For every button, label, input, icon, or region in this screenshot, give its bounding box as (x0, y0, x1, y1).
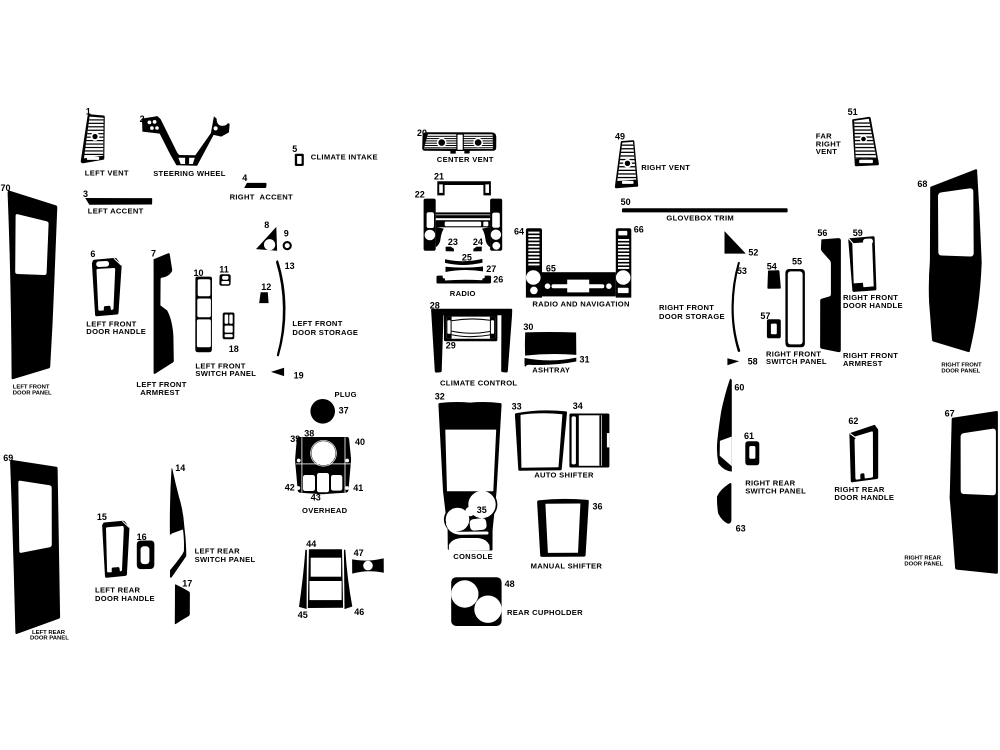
svg-text:SWITCH PANEL: SWITCH PANEL (195, 555, 256, 564)
svg-text:CENTER VENT: CENTER VENT (437, 155, 494, 164)
svg-text:42: 42 (285, 483, 295, 493)
svg-text:58: 58 (748, 356, 758, 366)
svg-text:3: 3 (83, 189, 88, 199)
svg-text:ARMREST: ARMREST (843, 359, 883, 368)
svg-text:61: 61 (744, 431, 754, 441)
svg-text:34: 34 (573, 401, 583, 411)
svg-text:50: 50 (621, 197, 631, 207)
svg-text:4: 4 (242, 173, 247, 183)
svg-text:25: 25 (462, 252, 472, 262)
svg-text:CLIMATE INTAKE: CLIMATE INTAKE (311, 153, 378, 162)
svg-text:46: 46 (354, 607, 364, 617)
svg-text:32: 32 (435, 392, 445, 402)
svg-text:36: 36 (593, 502, 603, 512)
svg-text:48: 48 (505, 579, 515, 589)
svg-text:60: 60 (734, 382, 744, 392)
svg-text:LEFT VENT: LEFT VENT (85, 169, 129, 178)
svg-text:SWITCH PANEL: SWITCH PANEL (745, 487, 806, 496)
svg-text:DOOR HANDLE: DOOR HANDLE (86, 327, 146, 336)
svg-text:15: 15 (97, 512, 107, 522)
svg-text:DOOR HANDLE: DOOR HANDLE (95, 594, 155, 603)
svg-text:52: 52 (748, 247, 758, 257)
svg-text:RADIO: RADIO (450, 289, 476, 298)
svg-text:44: 44 (306, 539, 316, 549)
svg-text:45: 45 (298, 610, 308, 620)
svg-text:PLUG: PLUG (335, 390, 357, 399)
svg-text:27: 27 (486, 264, 496, 274)
svg-text:RIGHT FRONT: RIGHT FRONT (659, 303, 714, 312)
svg-text:51: 51 (848, 107, 858, 117)
svg-text:VENT: VENT (816, 147, 838, 156)
svg-text:43: 43 (311, 492, 321, 502)
svg-text:AUTO SHIFTER: AUTO SHIFTER (534, 471, 594, 480)
svg-text:RIGHT VENT: RIGHT VENT (641, 163, 690, 172)
svg-text:DOOR PANEL: DOOR PANEL (941, 368, 980, 374)
svg-text:55: 55 (792, 257, 802, 267)
svg-text:DOOR PANEL: DOOR PANEL (13, 390, 52, 396)
svg-text:53: 53 (737, 266, 747, 276)
svg-text:1: 1 (86, 106, 91, 116)
svg-text:GLOVEBOX TRIM: GLOVEBOX TRIM (666, 214, 734, 223)
svg-text:2: 2 (140, 114, 145, 124)
svg-text:DOOR HANDLE: DOOR HANDLE (834, 493, 894, 502)
svg-text:REAR CUPHOLDER: REAR CUPHOLDER (507, 608, 583, 617)
svg-text:37: 37 (339, 406, 349, 416)
svg-text:6: 6 (90, 249, 95, 259)
svg-text:7: 7 (151, 249, 156, 259)
svg-text:38: 38 (304, 428, 314, 438)
svg-text:41: 41 (353, 483, 363, 493)
svg-text:35: 35 (477, 505, 487, 515)
svg-text:70: 70 (1, 183, 11, 193)
svg-text:62: 62 (848, 416, 858, 426)
svg-text:67: 67 (945, 409, 955, 419)
svg-text:23: 23 (448, 237, 458, 247)
svg-text:33: 33 (512, 401, 522, 411)
svg-text:28: 28 (430, 300, 440, 310)
svg-text:DOOR STORAGE: DOOR STORAGE (292, 328, 358, 337)
svg-text:DOOR HANDLE: DOOR HANDLE (843, 301, 903, 310)
svg-text:17: 17 (182, 579, 192, 589)
svg-text:DOOR STORAGE: DOOR STORAGE (659, 312, 725, 321)
svg-text:CONSOLE: CONSOLE (453, 552, 493, 561)
svg-text:12: 12 (261, 282, 271, 292)
svg-text:29: 29 (446, 340, 456, 350)
svg-text:31: 31 (580, 355, 590, 365)
svg-text:64: 64 (514, 226, 524, 236)
svg-text:30: 30 (523, 322, 533, 332)
svg-text:66: 66 (634, 224, 644, 234)
svg-text:63: 63 (736, 524, 746, 534)
svg-text:16: 16 (137, 532, 147, 542)
svg-text:MANUAL SHIFTER: MANUAL SHIFTER (531, 562, 603, 571)
svg-text:RADIO AND NAVIGATION: RADIO AND NAVIGATION (532, 299, 629, 308)
svg-text:56: 56 (817, 228, 827, 238)
svg-text:49: 49 (615, 132, 625, 142)
svg-text:26: 26 (493, 275, 503, 285)
svg-text:47: 47 (354, 548, 364, 558)
svg-text:9: 9 (284, 229, 289, 239)
svg-text:8: 8 (264, 220, 269, 230)
svg-text:68: 68 (917, 179, 927, 189)
svg-text:59: 59 (853, 228, 863, 238)
svg-text:11: 11 (219, 265, 229, 275)
svg-text:22: 22 (415, 190, 425, 200)
svg-text:10: 10 (194, 268, 204, 278)
svg-text:ASHTRAY: ASHTRAY (532, 366, 570, 375)
svg-text:24: 24 (473, 237, 483, 247)
svg-text:ARMREST: ARMREST (140, 388, 180, 397)
svg-text:69: 69 (3, 453, 13, 463)
svg-text:5: 5 (292, 144, 297, 154)
svg-text:40: 40 (355, 437, 365, 447)
svg-text:CLIMATE CONTROL: CLIMATE CONTROL (440, 379, 517, 388)
svg-text:DOOR PANEL: DOOR PANEL (904, 562, 943, 568)
svg-text:OVERHEAD: OVERHEAD (302, 506, 348, 515)
svg-text:21: 21 (434, 172, 444, 182)
svg-text:57: 57 (760, 311, 770, 321)
svg-text:19: 19 (294, 370, 304, 380)
svg-text:STEERING WHEEL: STEERING WHEEL (153, 169, 226, 178)
svg-text:20: 20 (417, 128, 427, 138)
svg-text:SWITCH PANEL: SWITCH PANEL (195, 369, 256, 378)
svg-text:39: 39 (290, 434, 300, 444)
svg-text:54: 54 (767, 261, 777, 271)
svg-text:DOOR PANEL: DOOR PANEL (30, 636, 69, 642)
svg-text:14: 14 (175, 463, 185, 473)
svg-text:RIGHT ACCENT: RIGHT ACCENT (230, 192, 293, 201)
svg-text:LEFT ACCENT: LEFT ACCENT (88, 207, 144, 216)
svg-text:SWITCH PANEL: SWITCH PANEL (766, 357, 827, 366)
svg-text:LEFT FRONT: LEFT FRONT (292, 319, 342, 328)
svg-text:18: 18 (229, 344, 239, 354)
svg-text:65: 65 (546, 263, 556, 273)
svg-text:13: 13 (285, 261, 295, 271)
